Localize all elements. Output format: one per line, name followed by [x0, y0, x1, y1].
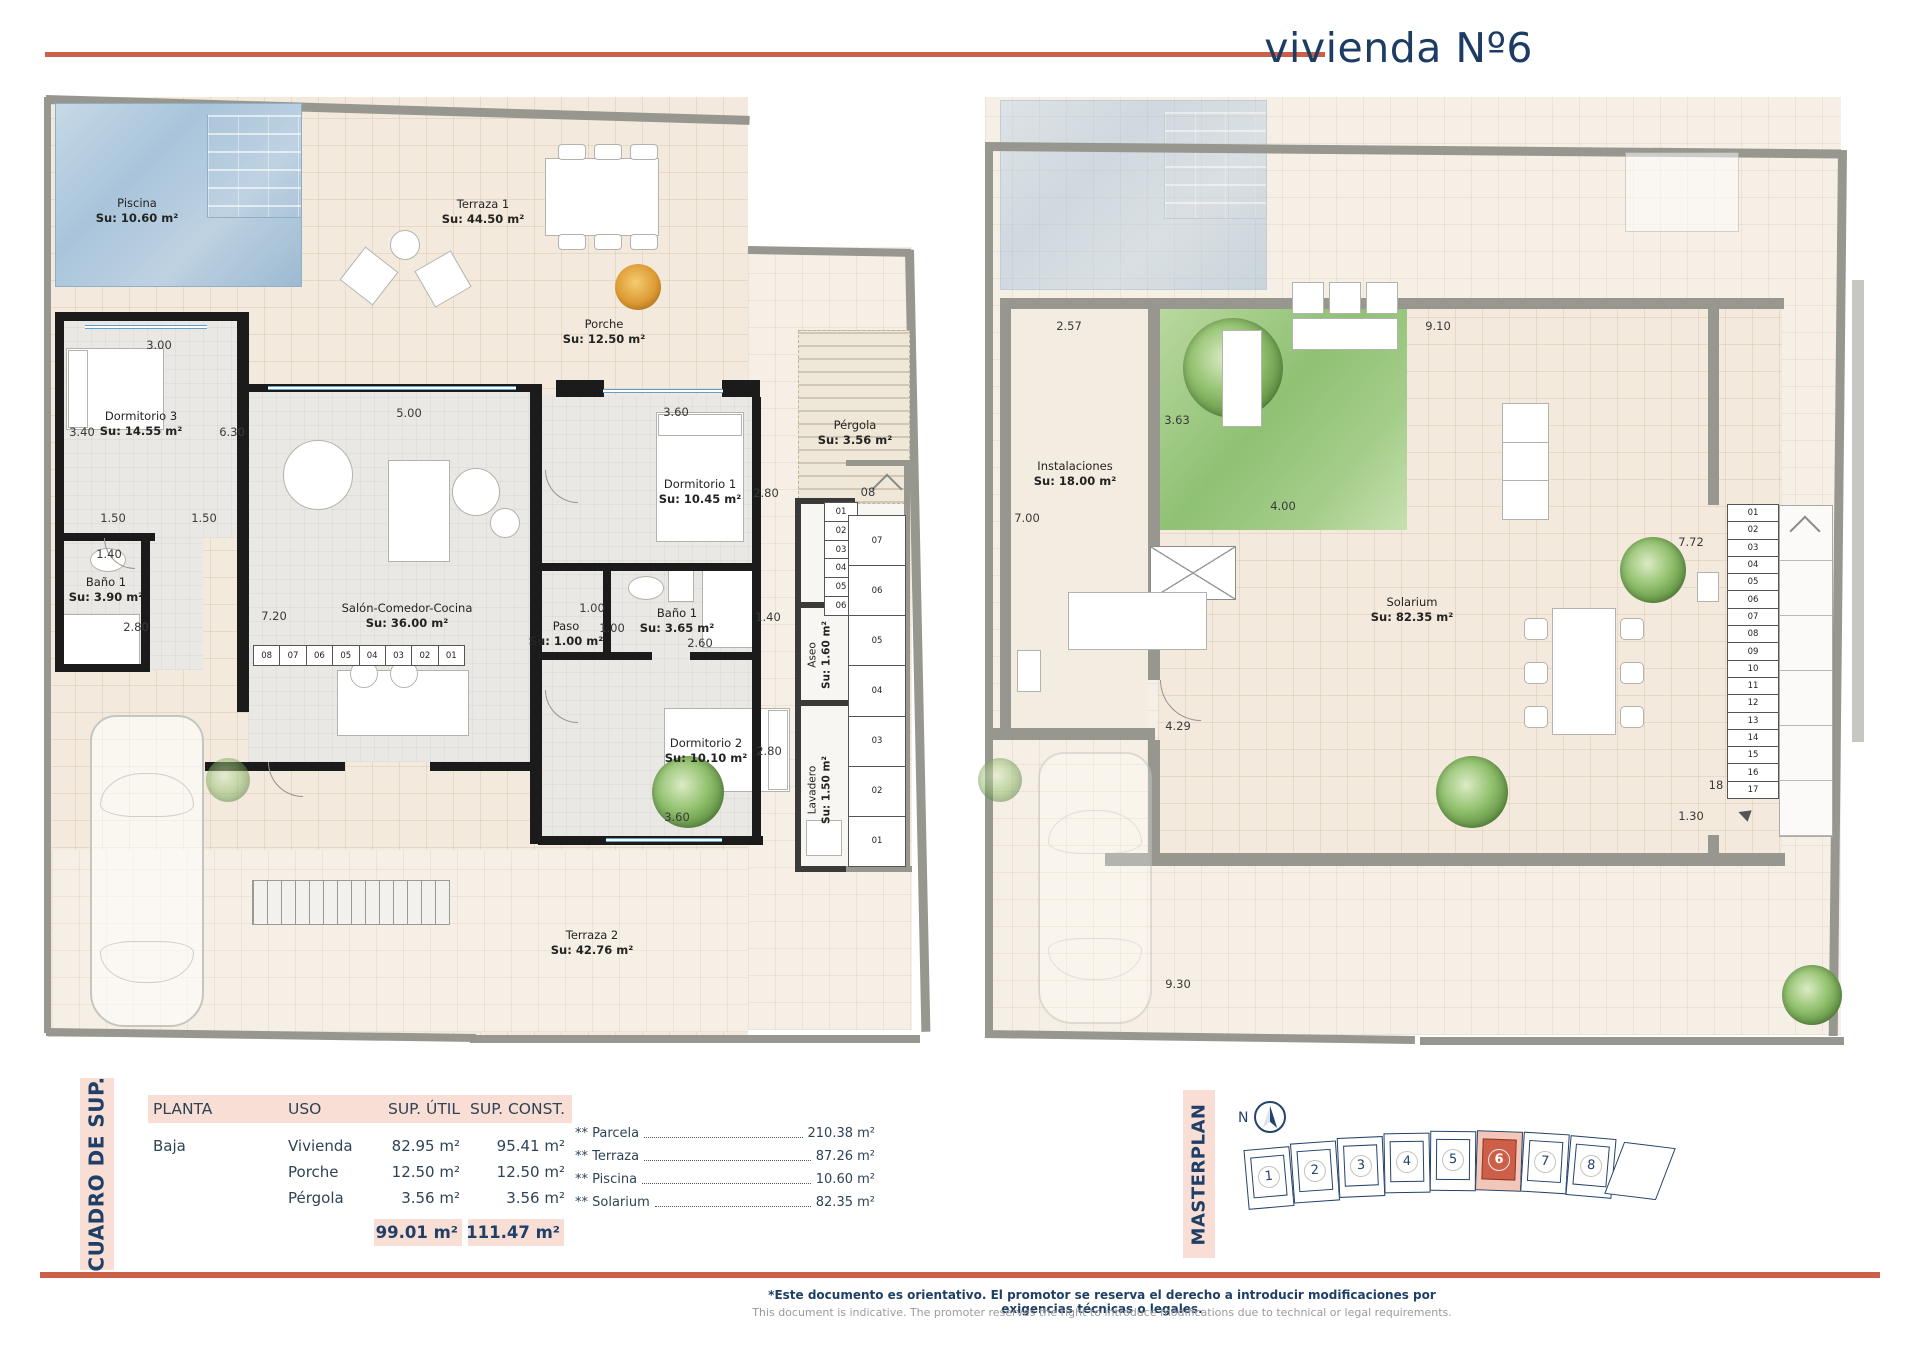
wall — [1708, 309, 1719, 505]
dimension-label: 9.30 — [1165, 977, 1191, 991]
bench-icon — [1222, 330, 1262, 427]
column-header: SUP. ÚTIL — [385, 1100, 460, 1118]
stair-number: 03 — [386, 646, 412, 665]
room-label-bano1: Baño 1Su: 3.90 m² — [69, 575, 143, 605]
neighbour-wall — [1852, 280, 1864, 742]
wall — [846, 460, 910, 466]
chair-icon — [1620, 618, 1644, 640]
wall — [237, 312, 249, 712]
stair-number: 17 — [1728, 782, 1778, 798]
dimension-label: 18 — [1709, 778, 1724, 792]
dimension-label: 1.50 — [100, 511, 126, 525]
table-cell: Baja — [153, 1137, 186, 1155]
total-const: 111.47 m² — [468, 1219, 564, 1246]
wall — [55, 664, 150, 672]
wall — [44, 97, 51, 1033]
footer-rule — [40, 1272, 1880, 1278]
chair-icon — [1620, 706, 1644, 728]
stair-number: 11 — [1728, 678, 1778, 695]
table-cell: 3.56 m² — [470, 1189, 565, 1207]
stair-number: 08 — [1728, 626, 1778, 643]
exterior-stair-icon — [252, 880, 450, 925]
masterplan-unit-6-highlighted: 6 — [1475, 1130, 1523, 1192]
lounge-chair-icon — [1292, 282, 1324, 314]
lounge-chair-icon — [1366, 282, 1398, 314]
coffee-table-icon — [490, 508, 520, 538]
header-rule — [45, 52, 1325, 57]
wall — [55, 312, 245, 321]
sofa-icon — [388, 460, 450, 562]
dimension-label: 3.00 — [146, 338, 172, 352]
dimension-label: 5.00 — [396, 406, 422, 420]
wall — [530, 384, 542, 844]
pillow-icon — [68, 350, 88, 428]
dimension-label: 2.80 — [756, 744, 782, 758]
table-cell: 95.41 m² — [470, 1137, 565, 1155]
wall — [690, 652, 760, 660]
window-icon — [85, 325, 207, 329]
dining-table-ghost-icon — [1625, 152, 1739, 232]
page-title: vivienda Nº6 — [1264, 24, 1533, 72]
total-util: 99.01 m² — [374, 1219, 462, 1246]
daybed-icon — [1068, 592, 1207, 650]
stair-landing-icon — [1779, 505, 1833, 837]
dimension-label: 9.10 — [1425, 319, 1451, 333]
wall — [990, 728, 1155, 740]
washbasin-icon — [628, 576, 664, 600]
lounge-chair-icon — [1329, 282, 1361, 314]
room-label-terraza1: Terraza 1Su: 44.50 m² — [442, 197, 524, 227]
section-strip: CUADRO DE SUP. — [80, 1078, 114, 1270]
dimension-label: 3.40 — [69, 425, 95, 439]
table-cell: Porche — [288, 1163, 339, 1181]
dimension-label: 1.00 — [599, 621, 625, 635]
chair-icon — [558, 234, 586, 250]
wall — [542, 563, 760, 571]
masterplan-unit-5: 5 — [1430, 1131, 1477, 1191]
dimension-label: 7.72 — [1678, 535, 1704, 549]
dimension-label: 7.00 — [1014, 511, 1040, 525]
masterplan-unit-7: 7 — [1520, 1132, 1570, 1195]
room-label-instalaciones: InstalacionesSu: 18.00 m² — [1034, 459, 1116, 489]
room-label-pergola: PérgolaSu: 3.56 m² — [818, 418, 892, 448]
table-cell: 12.50 m² — [385, 1163, 460, 1181]
room-label-aseo: AseoSu: 1.60 m² — [806, 621, 833, 689]
tree-icon — [1782, 965, 1842, 1025]
dimension-label: 2.60 — [687, 636, 713, 650]
stair-number: 07 — [280, 646, 306, 665]
footer-disclaimer-en: This document is indicative. The promote… — [752, 1306, 1452, 1319]
stair-number: 03 — [849, 717, 905, 767]
room-label-terraza2: Terraza 2Su: 42.76 m² — [551, 928, 633, 958]
dimension-label: 1.50 — [191, 511, 217, 525]
chair-icon — [1620, 662, 1644, 684]
dimension-label: 2.57 — [1056, 319, 1082, 333]
toilet-icon — [668, 570, 694, 602]
dimension-label: 4.00 — [1270, 499, 1296, 513]
extras-list: ** Parcela210.38 m² ** Terraza87.26 m² *… — [575, 1126, 875, 1218]
tree-icon — [1436, 756, 1508, 828]
stair-number: 01 — [849, 817, 905, 866]
wall — [1420, 1037, 1844, 1045]
masterplan-unit-1: 1 — [1243, 1146, 1294, 1210]
side-table-icon — [390, 230, 420, 260]
stair-number: 04 — [849, 666, 905, 716]
dimension-label: 4.29 — [1165, 719, 1191, 733]
dining-table-icon — [1552, 608, 1616, 735]
stair-number: 02 — [849, 767, 905, 817]
dimension-label: 08 — [861, 485, 876, 499]
storage-icon — [1502, 403, 1549, 520]
room-label-dormitorio3: Dormitorio 3Su: 14.55 m² — [100, 409, 182, 439]
stair-number: 08 — [254, 646, 280, 665]
stair-number: 01 — [1728, 505, 1778, 522]
room-label-paso: PasoSu: 1.00 m² — [529, 619, 603, 649]
dimension-label: 7.20 — [261, 609, 287, 623]
table-cell: 3.56 m² — [385, 1189, 460, 1207]
stair-number: 06 — [307, 646, 333, 665]
dimension-label: 2.80 — [123, 620, 149, 634]
lounger-icon — [1292, 318, 1398, 350]
chair-icon — [630, 234, 658, 250]
door-icon — [1017, 650, 1041, 692]
dimension-label: 3.60 — [664, 810, 690, 824]
chair-icon — [1524, 662, 1548, 684]
wall — [795, 498, 801, 872]
wall — [556, 380, 604, 397]
pool-steps-icon — [207, 115, 301, 218]
stair-number: 06 — [1728, 591, 1778, 608]
dimension-label: 1.40 — [755, 610, 781, 624]
masterplan-unit-3: 3 — [1337, 1136, 1386, 1198]
chair-icon — [594, 144, 622, 160]
wall-niche-icon — [1697, 572, 1719, 602]
stair-number: 03 — [1728, 540, 1778, 557]
room-label-dormitorio1: Dormitorio 1Su: 10.45 m² — [659, 477, 741, 507]
tree-icon — [978, 758, 1022, 802]
dimension-label: 6.30 — [219, 425, 245, 439]
room-label-lavadero: LavaderoSu: 1.50 m² — [806, 756, 833, 824]
room-label-porche: PorcheSu: 12.50 m² — [563, 317, 645, 347]
washer-icon — [806, 820, 842, 856]
stair-number: 12 — [1728, 695, 1778, 712]
wall — [722, 380, 760, 397]
dining-table-icon — [545, 158, 659, 236]
table-cell: Pérgola — [288, 1189, 344, 1207]
column-header: USO — [288, 1100, 321, 1118]
dimension-label: 3.63 — [1164, 413, 1190, 427]
table-cell: Vivienda — [288, 1137, 353, 1155]
stair-run-bottom: 0807060504030201 — [253, 645, 465, 666]
stair-number: 07 — [1728, 609, 1778, 626]
masterplan-unit-4: 4 — [1383, 1133, 1430, 1194]
tree-icon — [615, 264, 661, 310]
stair-number: 09 — [1728, 643, 1778, 660]
dimension-label: 1.30 — [1678, 809, 1704, 823]
stair-number: 05 — [849, 616, 905, 666]
stair-number: 05 — [1728, 574, 1778, 591]
section-title: CUADRO DE SUP. — [85, 1076, 109, 1271]
table-cell: 82.95 m² — [385, 1137, 460, 1155]
stair-number: 02 — [1728, 522, 1778, 539]
stair-number: 06 — [849, 566, 905, 616]
plan-sheet: vivienda Nº6 — [0, 0, 1920, 1357]
wall — [55, 312, 64, 672]
dimension-label: 1.40 — [96, 547, 122, 561]
stair-number: 16 — [1728, 764, 1778, 781]
dimension-label: 1.00 — [579, 601, 605, 615]
masterplan-unit-2: 2 — [1290, 1140, 1340, 1203]
round-table-icon — [283, 440, 353, 510]
pool-ghost — [1000, 100, 1267, 290]
chair-icon — [594, 234, 622, 250]
stair-number: 01 — [439, 646, 464, 665]
chair-icon — [630, 144, 658, 160]
stair-number: 04 — [1728, 557, 1778, 574]
room-label-salon: Salón-Comedor-CocinaSu: 36.00 m² — [342, 601, 473, 631]
tree-icon — [1620, 537, 1686, 603]
wall — [1708, 835, 1719, 863]
extras-row: ** Piscina10.60 m² — [575, 1172, 875, 1187]
room-label-dormitorio2: Dormitorio 2Su: 10.10 m² — [665, 736, 747, 766]
room-label-solarium: SolariumSu: 82.35 m² — [1371, 595, 1453, 625]
wall — [542, 652, 652, 660]
column-header: PLANTA — [153, 1100, 212, 1118]
chair-icon — [1524, 618, 1548, 640]
wall — [1000, 298, 1011, 740]
tree-icon — [206, 758, 250, 802]
column-header: SUP. CONST. — [470, 1100, 565, 1118]
pool — [55, 103, 302, 287]
stair-run-solarium: 0102030405060708091011121314151617 — [1727, 504, 1779, 799]
room-label-piscina: PiscinaSu: 10.60 m² — [96, 196, 178, 226]
stair-number: 07 — [849, 516, 905, 566]
wall — [470, 1035, 920, 1043]
wall — [795, 700, 855, 706]
stair-number: 05 — [333, 646, 359, 665]
window-icon — [268, 386, 516, 390]
wall — [1105, 853, 1785, 866]
room-label-bano1b: Baño 1Su: 3.65 m² — [640, 606, 714, 636]
table-cell: 12.50 m² — [470, 1163, 565, 1181]
north-label: N — [1238, 1110, 1248, 1126]
section-strip: MASTERPLAN — [1183, 1090, 1215, 1258]
stair-run-outer: 07060504030201 — [848, 515, 906, 867]
compass-icon — [1254, 1101, 1286, 1133]
coffee-table-icon — [452, 468, 500, 516]
dimension-label: 2.80 — [753, 486, 779, 500]
chair-icon — [1524, 706, 1548, 728]
pergola-area — [798, 330, 910, 504]
dimension-label: 3.60 — [663, 405, 689, 419]
section-title: MASTERPLAN — [1189, 1103, 1210, 1245]
extras-row: ** Terraza87.26 m² — [575, 1149, 875, 1164]
stair-number: 02 — [412, 646, 438, 665]
wall — [985, 144, 993, 1037]
stair-number: 14 — [1728, 730, 1778, 747]
stair-number: 10 — [1728, 661, 1778, 678]
stair-number: 15 — [1728, 747, 1778, 764]
window-icon — [606, 838, 722, 842]
stair-number: 13 — [1728, 713, 1778, 730]
car-icon — [90, 715, 204, 1027]
wall — [430, 762, 538, 771]
car-ghost-icon — [1038, 752, 1152, 1024]
extras-row: ** Parcela210.38 m² — [575, 1126, 875, 1141]
chair-icon — [558, 144, 586, 160]
extras-row: ** Solarium82.35 m² — [575, 1195, 875, 1210]
stair-number: 04 — [360, 646, 386, 665]
window-icon — [603, 389, 723, 393]
